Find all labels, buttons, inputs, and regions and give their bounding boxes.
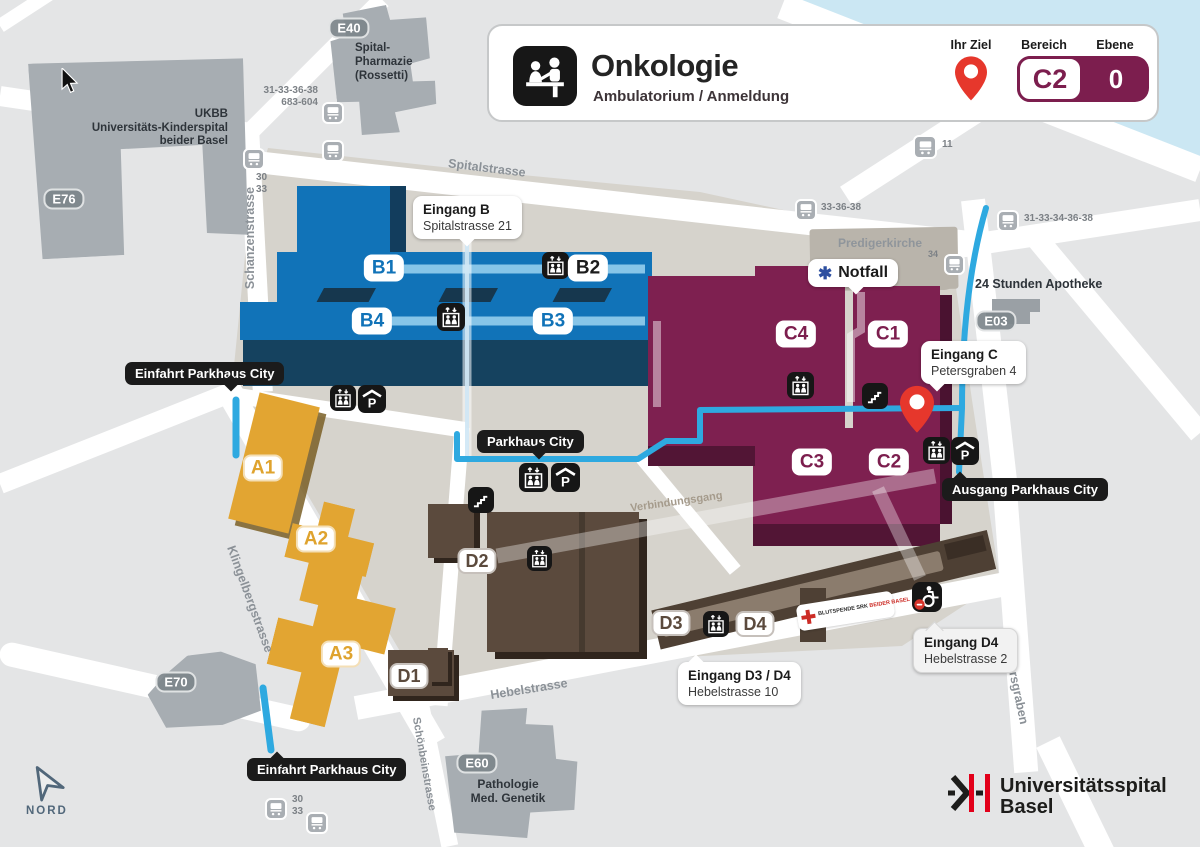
callout-eingang-b: Eingang B Spitalstrasse 21	[413, 196, 522, 239]
callout-notfall: ✱ Notfall	[808, 259, 898, 287]
tram-icon	[322, 140, 344, 162]
usb-logo-icon	[946, 770, 992, 816]
tram-icon	[997, 210, 1019, 232]
badge-a1: A1	[243, 455, 283, 482]
tram-line-34: 34	[928, 249, 938, 259]
elevator-icon	[330, 385, 356, 411]
badge-c2: C2	[869, 449, 909, 476]
bereich-ebene-badge: C2 0	[1017, 56, 1149, 102]
red-cross-icon	[800, 609, 816, 625]
callout-eingang-d4: Eingang D4 Hebelstrasse 2	[913, 628, 1018, 673]
tram-line-11: 11	[942, 139, 953, 151]
header-title: Onkologie	[591, 48, 738, 84]
badge-b4: B4	[352, 308, 392, 335]
badge-d3: D3	[651, 610, 690, 636]
callout-parkhaus-city: Parkhaus City	[477, 430, 584, 453]
badge-b3: B3	[533, 308, 573, 335]
hospital-wayfinding-map: UKBBUniversitäts-Kinderspitalbeider Base…	[0, 0, 1200, 847]
badge-c4: C4	[776, 321, 816, 348]
elevator-icon	[437, 303, 465, 331]
tram-icon	[243, 148, 265, 170]
tram-icon	[265, 798, 287, 820]
svg-text:P: P	[961, 448, 970, 463]
badge-a2: A2	[296, 526, 336, 553]
callout-eingang-c: Eingang C Petersgraben 4	[921, 341, 1026, 384]
north-label: NORD	[26, 805, 68, 817]
ihr-ziel-label: Ihr Ziel	[929, 38, 1013, 52]
callout-eingang-d34: Eingang D3 / D4 Hebelstrasse 10	[678, 662, 801, 705]
badge-c1: C1	[868, 321, 908, 348]
tram-lines-ne: 33-36-38	[821, 202, 861, 214]
badge-d2: D2	[457, 548, 496, 574]
badge-d1: D1	[389, 663, 428, 689]
tram-icon	[306, 812, 328, 834]
tram-icon	[795, 199, 817, 221]
destination-pin	[900, 382, 934, 438]
svg-text:P: P	[561, 474, 570, 489]
badge-d4: D4	[735, 611, 774, 637]
tram-icon	[913, 135, 937, 159]
usb-logo-text-2: Basel	[1000, 797, 1167, 818]
ebene-value: 0	[1083, 56, 1149, 102]
badge-c3: C3	[792, 449, 832, 476]
elevator-icon	[923, 437, 950, 464]
parking-garage-icon: P	[551, 463, 580, 492]
ihr-ziel-pin-icon	[955, 56, 987, 102]
svg-text:P: P	[368, 396, 377, 411]
tram-lines-e: 31-33-34-36-38	[1024, 213, 1093, 225]
mouse-cursor	[60, 68, 82, 94]
escalator-icon	[468, 487, 494, 513]
route-verbindungsgang-branch	[878, 489, 920, 578]
elevator-icon	[703, 611, 729, 637]
header-card: Onkologie Ambulatorium / Anmeldung Ihr Z…	[487, 24, 1159, 122]
wheelchair-icon	[912, 582, 942, 612]
reception-icon	[513, 46, 577, 106]
parking-garage-icon: P	[951, 437, 979, 465]
tram-icon	[322, 102, 344, 124]
usb-logo: Universitätsspital Basel	[946, 770, 1167, 818]
bereich-label: Bereich	[1009, 38, 1079, 52]
callout-ausgang-parkhaus: Ausgang Parkhaus City	[942, 478, 1108, 501]
badge-b2: B2	[568, 255, 608, 282]
parking-garage-icon: P	[358, 385, 386, 413]
elevator-icon	[527, 546, 552, 571]
elevator-icon	[519, 463, 548, 492]
tram-stop-30-33-south: 3033	[292, 794, 303, 817]
blood-donation-text: BLUTSPENDE SRK	[818, 604, 869, 618]
elevator-icon	[787, 372, 814, 399]
schanzenstrasse-label: Schanzenstrasse	[243, 163, 257, 313]
emergency-icon: ✱	[818, 265, 832, 282]
route-faded-notfall	[851, 292, 861, 402]
bereich-value: C2	[1017, 56, 1083, 102]
elevator-icon	[542, 252, 569, 279]
usb-logo-text-1: Universitätsspital	[1000, 776, 1167, 797]
callout-einfahrt-parkhaus-north: Einfahrt Parkhaus City	[125, 362, 284, 385]
parkhaus-dash-south	[263, 688, 271, 750]
header-subtitle: Ambulatorium / Anmeldung	[593, 88, 789, 105]
tram-stop-30-33: 3033	[256, 172, 267, 195]
ebene-label: Ebene	[1085, 38, 1145, 52]
escalator-icon	[862, 383, 888, 409]
badge-b1: B1	[364, 255, 404, 282]
tram-lines-nw: 31-33-36-38683-604	[232, 85, 318, 108]
callout-einfahrt-parkhaus-south: Einfahrt Parkhaus City	[247, 758, 406, 781]
badge-a3: A3	[321, 641, 361, 668]
tram-icon	[944, 254, 965, 275]
